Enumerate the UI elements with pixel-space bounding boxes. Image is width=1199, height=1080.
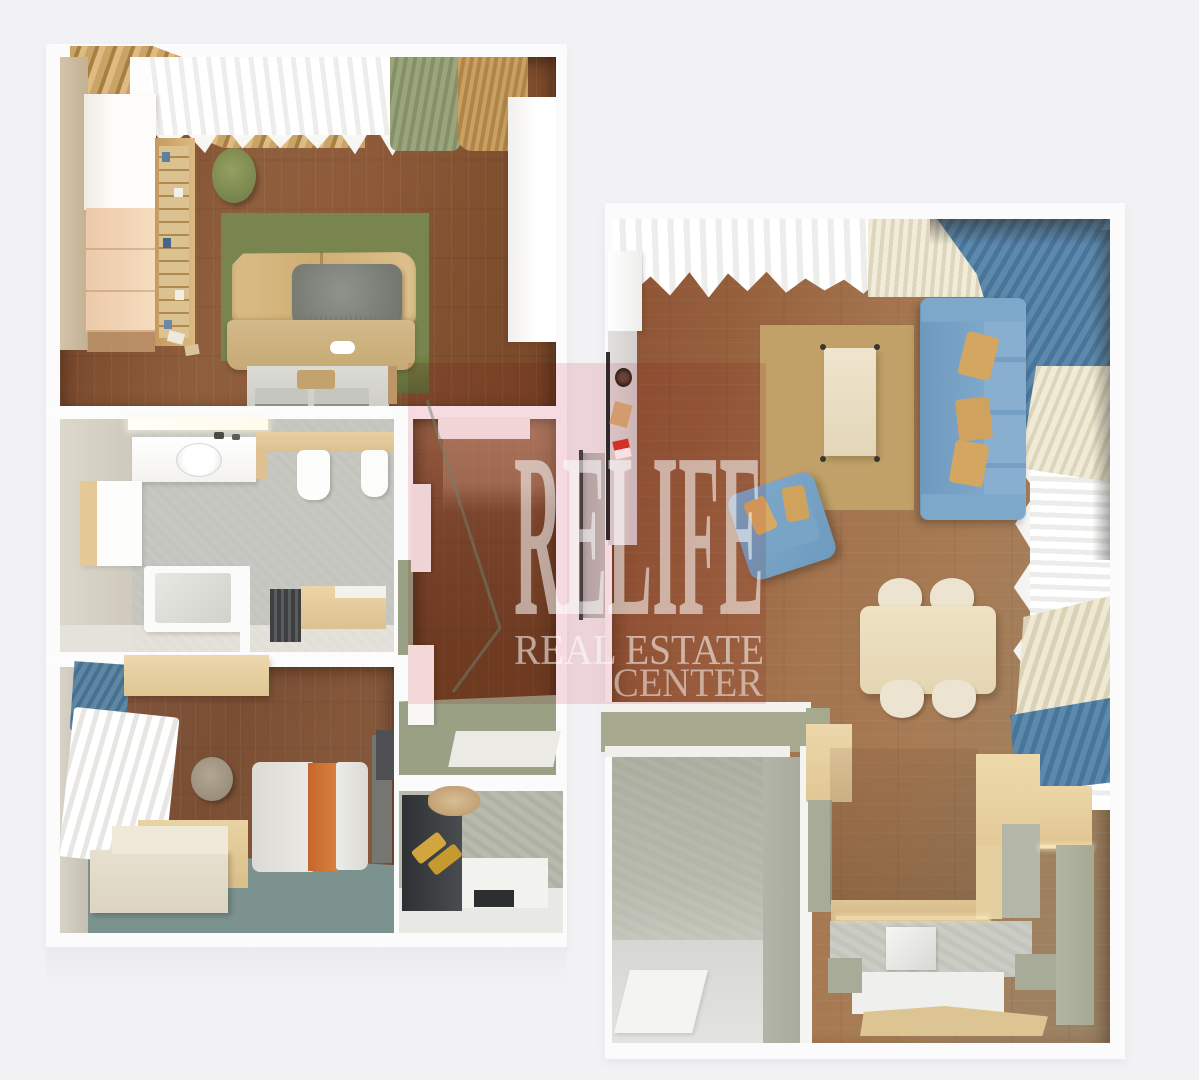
svg-text:CENTER: CENTER (613, 660, 763, 705)
svg-text:RELIFE: RELIFE (514, 405, 764, 665)
